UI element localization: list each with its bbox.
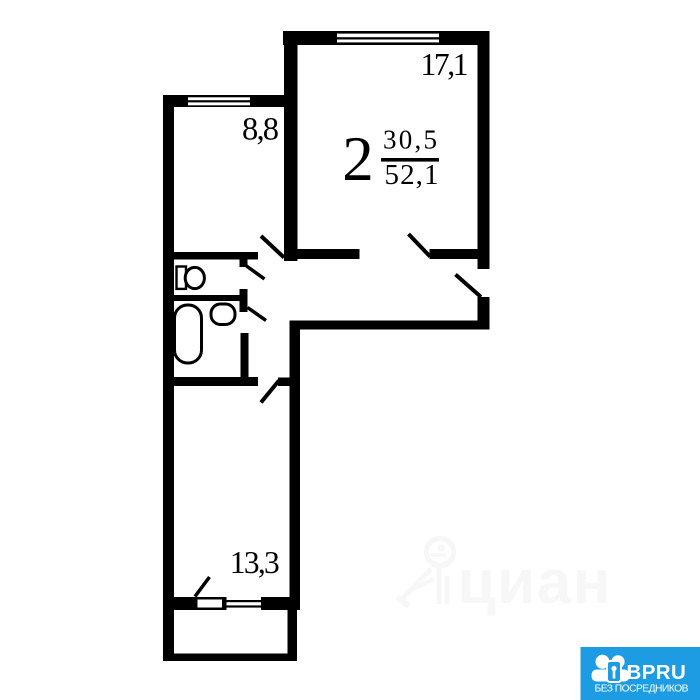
svg-text:17,1: 17,1 (421, 47, 469, 82)
svg-text:13,3: 13,3 (230, 545, 280, 580)
svg-text:циан: циан (458, 548, 612, 617)
svg-text:30,5: 30,5 (383, 125, 437, 155)
svg-text:8,8: 8,8 (242, 112, 279, 148)
svg-text:BPRU: BPRU (627, 661, 687, 684)
svg-text:2: 2 (342, 124, 374, 194)
svg-text:БЕЗ ПОСРЕДНИКОВ: БЕЗ ПОСРЕДНИКОВ (595, 683, 689, 694)
svg-text:52,1: 52,1 (385, 159, 439, 191)
